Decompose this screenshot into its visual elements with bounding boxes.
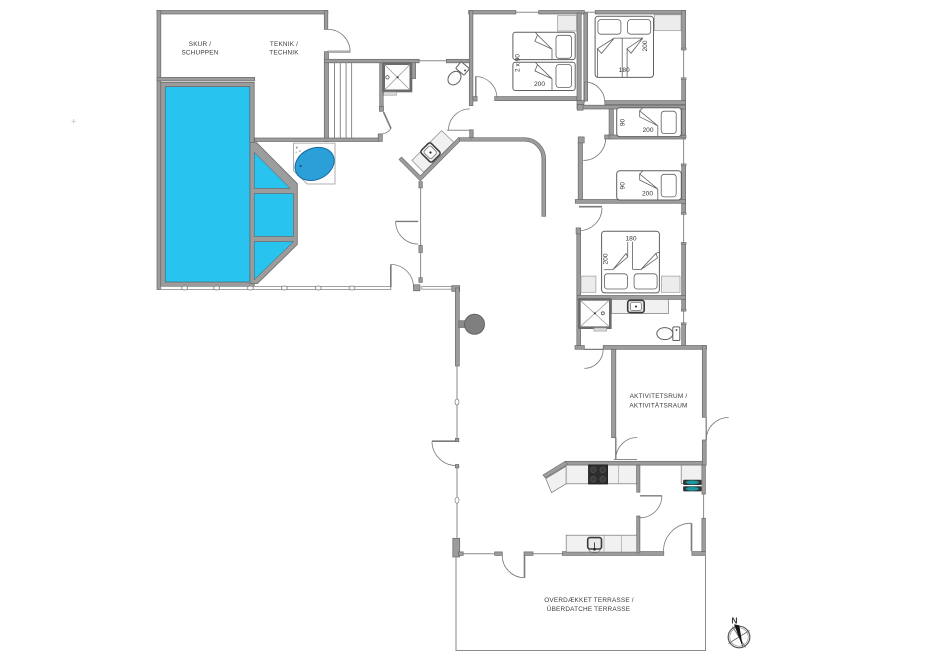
svg-text:AKTIVITÄTSRAUM: AKTIVITÄTSRAUM xyxy=(629,402,687,410)
svg-text:ÜBERDATCHE TERRASSE: ÜBERDATCHE TERRASSE xyxy=(547,605,630,613)
svg-text:90: 90 xyxy=(619,119,626,127)
svg-text:SKUR /: SKUR / xyxy=(189,41,212,48)
svg-text:200: 200 xyxy=(642,190,653,197)
svg-text:180: 180 xyxy=(625,236,636,243)
svg-text:200: 200 xyxy=(642,40,649,51)
svg-text:TECHNIK: TECHNIK xyxy=(269,50,299,57)
svg-text:200: 200 xyxy=(534,81,545,88)
svg-text:N: N xyxy=(731,616,737,626)
svg-text:90: 90 xyxy=(619,182,626,190)
svg-text:TEKNIK /: TEKNIK / xyxy=(270,41,298,48)
svg-text:2 x 90: 2 x 90 xyxy=(514,54,521,72)
svg-text:OVERDÆKKET TERRASSE /: OVERDÆKKET TERRASSE / xyxy=(544,597,634,604)
svg-text:200: 200 xyxy=(642,127,653,134)
svg-text:SCHUPPEN: SCHUPPEN xyxy=(181,50,218,57)
svg-text:180: 180 xyxy=(619,67,630,74)
svg-text:200: 200 xyxy=(603,253,610,264)
svg-text:AKTIVITETSRUM /: AKTIVITETSRUM / xyxy=(630,393,688,400)
